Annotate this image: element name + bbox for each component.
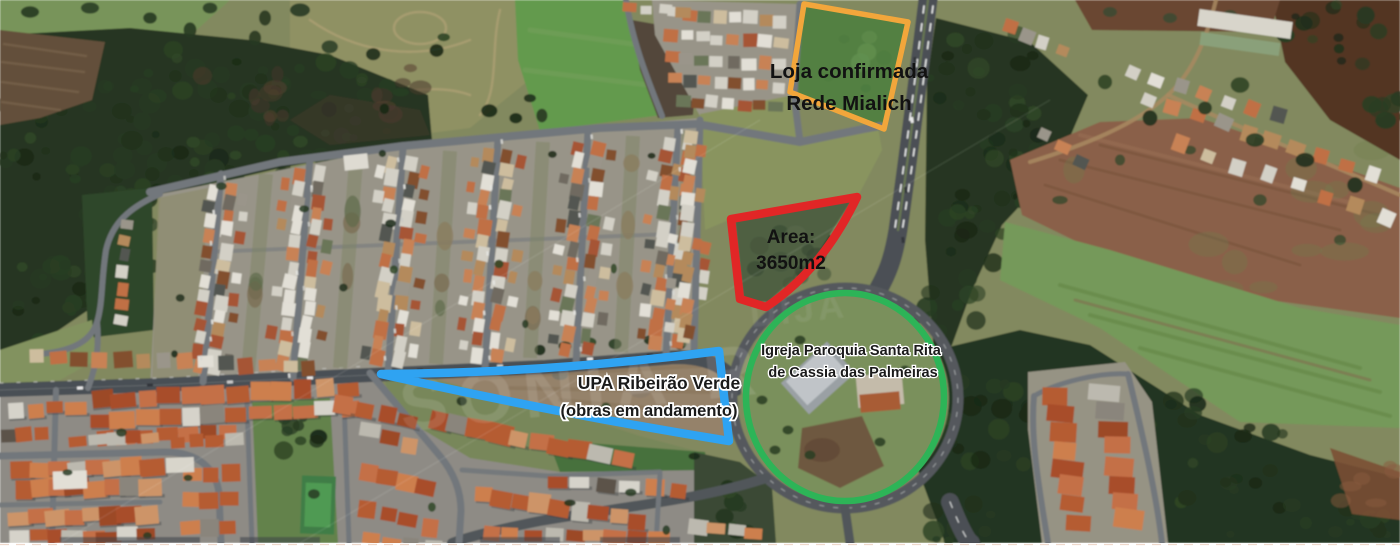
svg-text:Igreja Paroquia Santa Rita: Igreja Paroquia Santa Rita [761, 343, 942, 359]
svg-text:de Cassia das Palmeiras: de Cassia das Palmeiras [768, 365, 937, 381]
svg-text:UPA Ribeirão Verde: UPA Ribeirão Verde [578, 373, 741, 393]
svg-text:3650m2: 3650m2 [756, 253, 826, 274]
svg-text:Rede Mialich: Rede Mialich [786, 92, 911, 115]
svg-text:(obras em andamento): (obras em andamento) [561, 402, 738, 420]
svg-text:Area:: Area: [767, 227, 816, 248]
svg-text:Loja confirmada: Loja confirmada [770, 60, 929, 83]
